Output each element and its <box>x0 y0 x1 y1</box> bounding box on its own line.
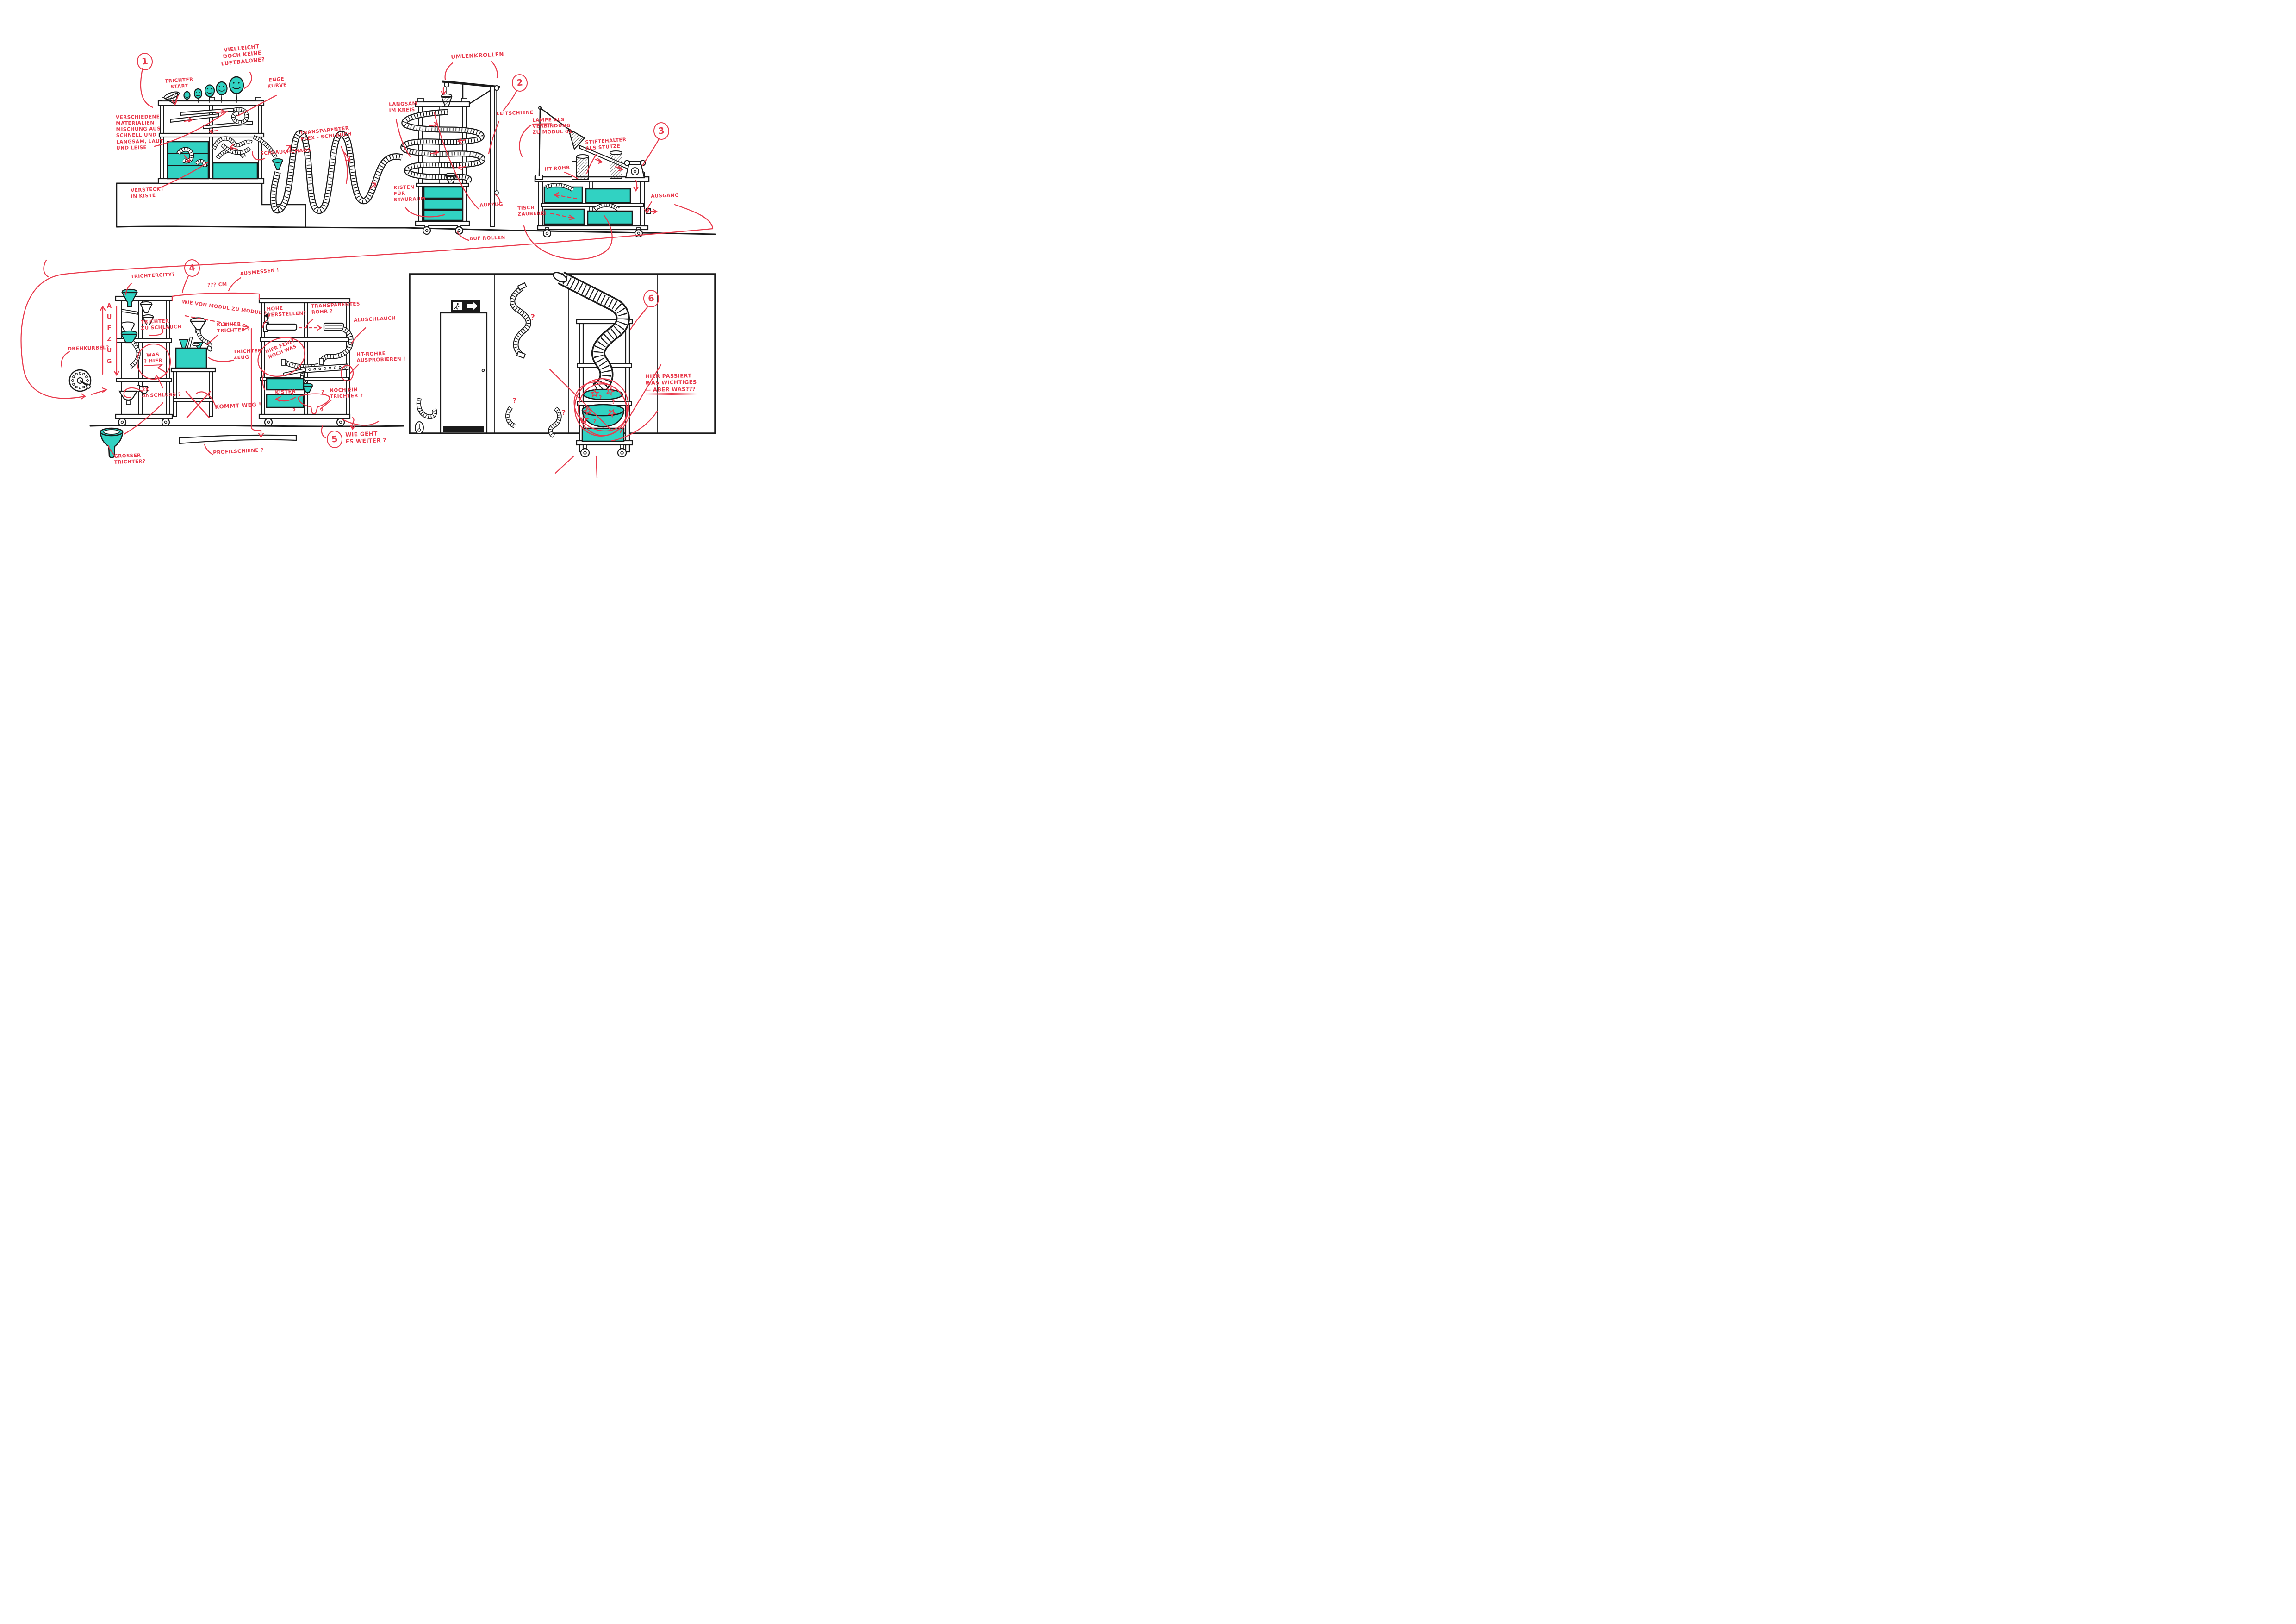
note-trichter-zu-schlauch: TRICHTERZU SCHLAUCH <box>141 318 182 331</box>
note-kisten-stauraum: KISTENFÜRSTAURAUM <box>393 184 426 204</box>
note-enge-kurve: ENGEKURVE <box>267 76 287 90</box>
note-transparentes-rohr: TRANSPARENTESROHR ? <box>311 301 361 316</box>
note-hoehe: HÖHEVERSTELLEN? <box>267 305 306 319</box>
note-wichtiges: HIER PASSIERTWAS WICHTIGES— ABER WAS??? <box>645 372 697 395</box>
module5-wheels <box>265 418 344 426</box>
crank-wheel <box>69 370 91 391</box>
qmark-star-3: ? <box>593 418 596 425</box>
module2-bottom-funnel <box>446 173 456 184</box>
qmark-funnel-1: ? <box>291 392 294 398</box>
note-anschluss: 2XANSCHLUSS ? <box>142 386 181 399</box>
module6-big-tube <box>552 270 623 390</box>
module6-wheels <box>581 445 626 457</box>
transparent-tube <box>324 323 343 331</box>
note-auf-rollen: AUF ROLLEN <box>469 235 505 242</box>
profil-rail <box>180 435 296 443</box>
note-lampe: LAMPE ALS VERBINDUNGZU MODUL 02 <box>532 117 572 136</box>
balloon-1 <box>184 92 190 99</box>
qmark-funnel-2: ? <box>321 389 324 395</box>
module3-desk-items <box>572 145 646 180</box>
note-aufzug-vertical: AUFZUG <box>106 303 113 369</box>
telephone-icon <box>625 161 646 178</box>
wall-hose-j <box>419 398 435 417</box>
flex-hose <box>273 133 402 211</box>
note-ht-rohre: HT-ROHREAUSPROBIEREN ! <box>356 350 406 364</box>
qmark-wall-2: ? <box>513 397 516 405</box>
note-kleiner-trichter: KLEINERTRICHTER ? <box>217 321 250 334</box>
exit-sign-icon <box>451 300 480 312</box>
note-materialien: VERSCHIEDENEMATERIALIENMISCHUNG AUSSCHNE… <box>116 114 163 151</box>
note-leitschiene: LEITSCHIENE <box>496 110 534 117</box>
note-ausgang: AUSGANG <box>651 193 679 200</box>
note-masz: ??? CM <box>207 282 227 289</box>
note-versteckt: VERSTECKTIN KISTE <box>131 186 164 200</box>
balloon-5 <box>230 77 243 94</box>
wall-hose-c <box>508 407 515 426</box>
trichter-zeug-box <box>176 337 206 368</box>
note-tisch-zauberei: TISCHZAUBEREI <box>517 205 546 218</box>
note-trichter-zeug: TRICHTERZEUG <box>233 348 262 361</box>
wall-hose-s2 <box>550 408 559 436</box>
module2-spiral <box>404 112 483 181</box>
wall-bulb-symbol <box>415 422 423 434</box>
qmark-wall-3: ? <box>562 409 566 417</box>
balloon-2 <box>194 89 202 98</box>
note-langsam: LANGSAMIM KREIS <box>389 101 417 114</box>
qmark-wall-1: ? <box>530 313 535 322</box>
module2-wheels <box>423 225 463 234</box>
qmark-star-2: ? <box>612 399 615 405</box>
sketch-page: 1 TRICHTERSTART VIELLEICHTDOCH KEINELUFT… <box>0 0 726 513</box>
module1-side-funnel <box>273 159 283 169</box>
balloon-4 <box>217 82 227 95</box>
qmark-funnel-3: ? <box>292 407 296 414</box>
note-wie-geht: WIE GEHTES WEITER ? <box>345 430 386 445</box>
note-was-hier: WAS? HIER <box>143 352 163 366</box>
note-noch-ein-trichter: NOCH EINTRICHTER ? <box>330 387 363 400</box>
note-trichter-start: TRICHTERSTART <box>165 77 194 91</box>
exit-door <box>441 313 487 433</box>
qmark-funnel-4: ? <box>320 407 324 414</box>
module6-bowls <box>582 389 624 441</box>
wall-hose-s <box>512 283 529 358</box>
kleiner-trichter-funnel <box>191 318 205 333</box>
qmark-star-1: ? <box>599 394 602 400</box>
note-grosser-trichter: GROSSERTRICHTER? <box>114 453 146 466</box>
balloon-3 <box>205 85 214 97</box>
note-aufzug: AUFZUG <box>479 201 503 209</box>
